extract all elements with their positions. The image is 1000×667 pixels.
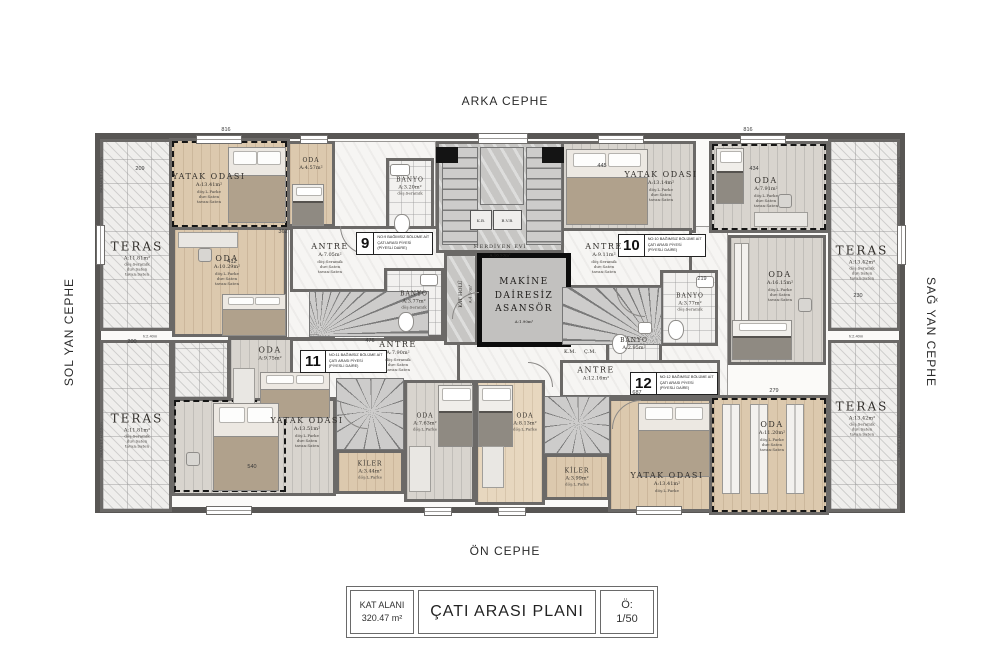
desk <box>482 446 504 488</box>
room-label: YATAK ODASIA:13.51m²döş:L.Parkeduv:Saten… <box>270 416 343 448</box>
title-block-name-cell: ÇATI ARASI PLANI <box>418 590 596 634</box>
scale-value: 1/50 <box>616 612 637 626</box>
double-bed <box>213 403 279 491</box>
chimney-block-left <box>436 147 458 163</box>
window <box>636 506 682 515</box>
unit-description: NO:10 BAĞIMSIZ BÖLÜME AİT ÇATI ARASI PİY… <box>645 235 705 256</box>
window <box>206 506 252 515</box>
dimension: 200 <box>127 339 136 345</box>
parapet-note: PARAPET H:110cm <box>99 157 104 192</box>
title-block-scale-cell: Ö: 1/50 <box>600 590 654 634</box>
dimension: 219 <box>697 276 706 282</box>
terrace-lower-left-extension <box>172 340 230 400</box>
window <box>498 507 526 516</box>
unit-tag-9: 9 NO:9 BAĞIMSIZ BÖLÜME AİT ÇATI ARASI Pİ… <box>356 232 433 255</box>
dimension: 445 <box>597 163 606 169</box>
double-bed <box>222 294 286 336</box>
toilet <box>394 214 410 234</box>
unit-tag-11: 11 NO:11 BAĞIMSIZ BÖLÜME AİT ÇATI ARASI … <box>300 350 387 373</box>
window <box>424 507 452 516</box>
room-label: KİLERA:3.99m²döş:L.Parke <box>565 467 590 486</box>
plan-title: ÇATI ARASI PLANI <box>430 603 584 621</box>
chair <box>798 298 812 312</box>
room-label: YATAK ODASIA:13.14m²döş:L.Parkeduv:Saten… <box>624 170 697 202</box>
window <box>897 225 906 265</box>
room-label: BANYOA:3.77m²döş:Seramik <box>400 290 428 309</box>
desk <box>178 232 238 248</box>
stairs-landing <box>480 147 524 205</box>
kat-holu-label: KAT HOLÜ <box>458 280 464 308</box>
sink <box>390 164 410 176</box>
window <box>478 133 528 144</box>
window <box>598 135 644 144</box>
title-block-area-cell: KAT ALANI 320.47 m² <box>350 590 414 634</box>
cm-label: Ç.M. <box>584 349 596 355</box>
shaft-bvb-label: B.V.B. <box>502 218 514 223</box>
room-label: BANYOA:3.77m²döş:Seramik <box>676 292 704 311</box>
dimension: 434 <box>749 166 758 172</box>
elevator-label-2: DAİRESİZ <box>495 290 554 304</box>
unit-description: NO:12 BAĞIMSIZ BÖLÜME AİT ÇATI ARASI PİY… <box>657 373 717 394</box>
unit-number: 9 <box>357 233 374 254</box>
parapet-note: PARAPET H:110cm <box>99 422 104 457</box>
chair <box>778 194 792 208</box>
room-label: BANYOA:2.95m² <box>620 337 648 351</box>
shaft-kb-box: K.B. <box>470 210 492 230</box>
single-bed <box>478 385 513 447</box>
dimension: 476 <box>365 338 374 344</box>
parapet-note: PARAPET H:110cm <box>897 422 902 457</box>
chair <box>186 452 200 466</box>
room-label: ANTREA:12.16m² <box>577 366 614 383</box>
window <box>300 135 328 144</box>
kat-holu-area: A:4.10m² <box>468 285 473 304</box>
room-label: ODAA:9.75m² <box>258 346 281 363</box>
window <box>196 135 242 144</box>
room-label: ANTREA:7.90m²döş:Seramikduv:Satentavan:S… <box>379 340 416 372</box>
room-label: TERASA:11.81m²döş:Seramikduv:Satentavan:… <box>111 411 164 448</box>
facade-label-front: ÖN CEPHE <box>470 544 541 558</box>
scale-label: Ö: <box>621 598 633 612</box>
single-bed <box>292 184 324 226</box>
stairwell-area: A:16.93m² <box>489 253 510 258</box>
dimension: 687 <box>632 390 641 396</box>
elevator-area: A:1.90m² <box>515 319 534 324</box>
dimension: 362 <box>278 229 287 235</box>
km-label: K.M. <box>564 349 576 355</box>
facade-label-left: SOL YAN CEPHE <box>62 278 76 386</box>
stairwell-label: MERDİVEN EVİ <box>474 244 527 250</box>
parapet-note: PARAPET H:110cm <box>897 157 902 192</box>
elevator-label-3: ASANSÖR <box>495 303 553 317</box>
elevator-shaft: MAKİNE DAİRESİZ ASANSÖR A:1.90m² <box>477 253 571 347</box>
window <box>96 225 105 265</box>
floor-plan-sheet: ARKA CEPHE ÖN CEPHE SOL YAN CEPHE SAĞ YA… <box>0 0 1000 667</box>
room-label: TERASA:13.42m²döş:Seramikduv:Satentavan:… <box>836 399 889 436</box>
chair <box>198 248 212 262</box>
dimension: 816 <box>743 127 752 133</box>
room-label: TERASA:11.81m²döş:Seramikduv:Satentavan:… <box>111 239 164 276</box>
elevator-label-1: MAKİNE <box>499 276 548 290</box>
room-label: YATAK ODASIA:13.41m²döş:L.Parke <box>630 471 703 493</box>
desk <box>754 212 808 227</box>
headroom-note: h:2.40m <box>143 334 157 339</box>
sink <box>420 274 438 286</box>
sink <box>638 322 652 334</box>
headroom-note: h:2.40m <box>849 334 863 339</box>
unit-description: NO:9 BAĞIMSIZ BÖLÜME AİT ÇATI ARASI PİYE… <box>374 233 432 254</box>
single-bed <box>716 148 744 204</box>
unit-description: NO:11 BAĞIMSIZ BÖLÜME AİT ÇATI ARASI PİY… <box>326 351 386 372</box>
toilet <box>398 312 414 332</box>
room-label: ODAA:4.57m² <box>299 157 322 171</box>
wardrobe <box>722 404 740 494</box>
single-bed <box>732 320 792 360</box>
room-label: YATAK ODASIA:13.41m²döş:L.Parkeduv:Saten… <box>172 172 245 204</box>
wardrobe <box>734 243 749 331</box>
area-label: KAT ALANI <box>360 599 405 612</box>
chimney-block-right <box>542 147 564 163</box>
room-label: TERASA:13.42m²döş:Seramikduv:Satentavan:… <box>836 243 889 280</box>
unit-tag-10: 10 NO:10 BAĞIMSIZ BÖLÜME AİT ÇATI ARASI … <box>618 234 706 257</box>
wardrobe <box>786 404 804 494</box>
room-label: ANTREA:7.05m²döş:Seramikduv:Satentavan:S… <box>311 242 348 274</box>
dimension: 230 <box>853 293 862 299</box>
unit-number: 10 <box>619 235 645 256</box>
terrace-upper-right <box>828 139 900 331</box>
area-value: 320.47 m² <box>362 612 403 625</box>
room-label: ODAA:16.15m²döş:L.Parkeduv:Satentavan:Sa… <box>767 270 793 302</box>
dimension: 816 <box>221 127 230 133</box>
facade-label-right: SAĞ YAN CEPHE <box>924 277 938 387</box>
dimension: 412 <box>227 259 236 265</box>
room-label: ODAA:11.20m²döş:L.Parkeduv:Satentavan:Sa… <box>759 420 785 452</box>
dimension: 279 <box>769 388 778 394</box>
room-label: KİLERA:3.44m²döş:L.Parke <box>358 460 383 479</box>
spiral-stairs-unit-12 <box>544 396 610 454</box>
room-label: ODAA:8.13m²döş:L.Parke <box>513 412 537 431</box>
dimension: 540 <box>247 464 256 470</box>
window <box>740 135 786 144</box>
double-bed <box>638 403 710 477</box>
dimension: 209 <box>135 166 144 172</box>
toilet <box>668 320 684 340</box>
unit-number: 11 <box>301 351 326 372</box>
room-label: ANTREA:9.11m²döş:Seramikduv:Satentavan:S… <box>585 242 622 274</box>
shaft-kb-label: K.B. <box>477 218 485 223</box>
facade-label-back: ARKA CEPHE <box>462 94 549 108</box>
room-label: ODAA:7.91m²döş:L.Parkeduv:Satentavan:Sat… <box>754 176 778 208</box>
unit-tag-12: 12 NO:12 BAĞIMSIZ BÖLÜME AİT ÇATI ARASI … <box>630 372 718 395</box>
shaft-bvb-box: B.V.B. <box>493 210 522 230</box>
room-label: ODAA:7.63m²döş:L.Parke <box>413 412 437 431</box>
single-bed <box>438 385 473 447</box>
title-block: KAT ALANI 320.47 m² ÇATI ARASI PLANI Ö: … <box>346 586 658 638</box>
room-label: BANYOA:3.20m²döş:Seramik <box>396 176 424 195</box>
desk <box>409 446 431 492</box>
